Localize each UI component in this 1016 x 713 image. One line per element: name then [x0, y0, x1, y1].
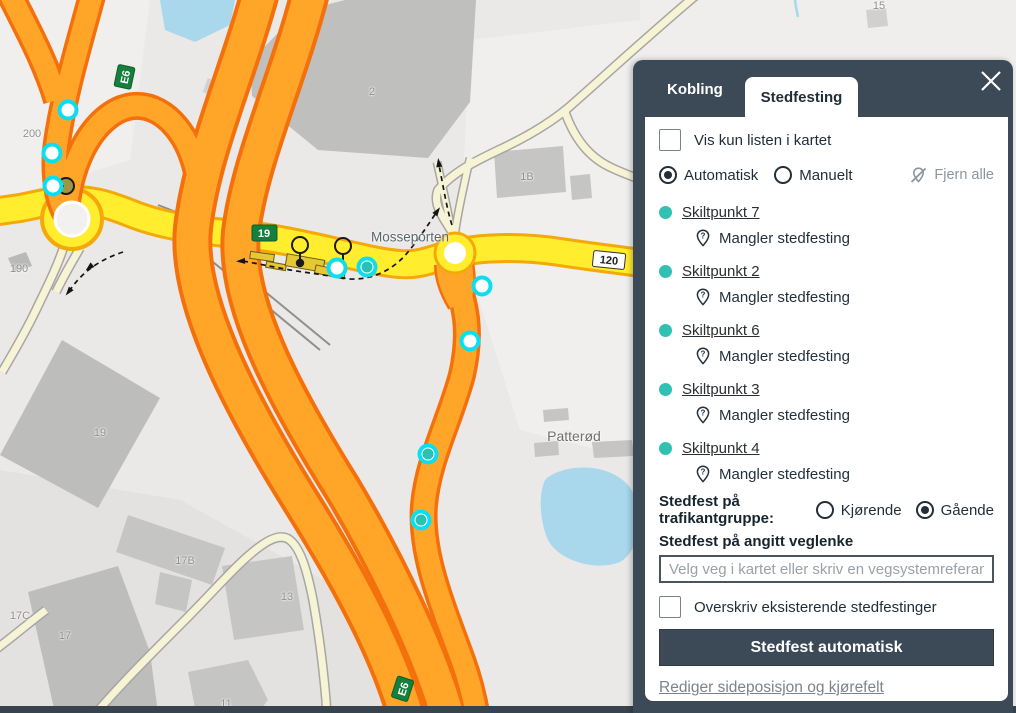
teal-dot-icon: [659, 383, 672, 396]
status-text: Mangler stedfesting: [719, 466, 850, 483]
pin-question-icon: ?: [695, 288, 711, 306]
edit-position-link[interactable]: Rediger sideposisjon og kjørefelt: [659, 679, 884, 697]
map-sign-point-marker[interactable]: [420, 446, 437, 463]
overwrite-label: Overskriv eksisterende stedfestinger: [694, 599, 937, 616]
map-sign-point-marker[interactable]: [44, 145, 61, 162]
svg-text:120: 120: [599, 254, 619, 268]
traffic-gaende-radio[interactable]: [916, 501, 934, 519]
teal-dot-icon: [659, 265, 672, 278]
show-only-list-label: Vis kun listen i kartet: [694, 132, 831, 149]
svg-text:19: 19: [258, 228, 270, 240]
traffic-gaende-label: Gående: [941, 502, 994, 519]
panel-body: Vis kun listen i kartet Automatisk Manue…: [645, 117, 1008, 701]
panel-header: Kobling Stedfesting: [633, 60, 1013, 117]
pin-question-icon: ?: [695, 229, 711, 247]
badge-19: 19: [252, 225, 277, 241]
list-item: Skiltpunkt 6 ? Mangler stedfesting: [659, 321, 994, 365]
map-sign-point-marker[interactable]: [413, 512, 430, 529]
map-sign-point-marker[interactable]: [359, 259, 376, 276]
teal-dot-icon: [659, 324, 672, 337]
traffic-kjorende-radio[interactable]: [816, 501, 834, 519]
status-text: Mangler stedfesting: [719, 289, 850, 306]
tab-stedfesting[interactable]: Stedfesting: [745, 77, 858, 117]
traffic-group-label: Stedfest på trafikantgruppe:: [659, 493, 816, 527]
show-only-list-checkbox[interactable]: [659, 129, 681, 151]
map-sign-point-marker[interactable]: [329, 260, 346, 277]
list-item: Skiltpunkt 7 ? Mangler stedfesting: [659, 203, 994, 247]
mode-row: Automatisk Manuelt Fjern alle: [659, 164, 994, 186]
svg-text:?: ?: [701, 409, 706, 418]
pin-question-icon: ?: [695, 465, 711, 483]
road-link-input[interactable]: [659, 555, 994, 583]
map-sign-point-marker[interactable]: [474, 278, 491, 295]
close-icon[interactable]: [979, 69, 1003, 93]
map-sign-point-marker[interactable]: [462, 333, 479, 350]
sign-point-link[interactable]: Skiltpunkt 6: [682, 322, 760, 339]
remove-all-button[interactable]: Fjern alle: [909, 166, 994, 185]
svg-text:?: ?: [701, 350, 706, 359]
remove-all-label: Fjern alle: [934, 167, 994, 183]
pin-question-icon: ?: [695, 406, 711, 424]
stedfesting-panel: Kobling Stedfesting Vis kun listen i kar…: [633, 60, 1013, 713]
sign-point-link[interactable]: Skiltpunkt 3: [682, 381, 760, 398]
badge-120: 120: [592, 250, 625, 269]
slashed-pin-icon: [909, 166, 928, 185]
map-sign-point-marker[interactable]: [45, 178, 62, 195]
mode-automatic-label: Automatisk: [684, 167, 758, 184]
status-text: Mangler stedfesting: [719, 230, 850, 247]
sign-point-link[interactable]: Skiltpunkt 4: [682, 440, 760, 457]
list-item: Skiltpunkt 4 ? Mangler stedfesting: [659, 439, 994, 483]
stedfest-automatisk-button[interactable]: Stedfest automatisk: [659, 629, 994, 666]
list-item: Skiltpunkt 2 ? Mangler stedfesting: [659, 262, 994, 306]
status-text: Mangler stedfesting: [719, 407, 850, 424]
sign-point-link[interactable]: Skiltpunkt 2: [682, 263, 760, 280]
teal-dot-icon: [659, 442, 672, 455]
sign-point-list: Skiltpunkt 7 ? Mangler stedfesting Skilt…: [659, 203, 994, 483]
app-window: E6 E6 19 120 Mosseporten Patterød 200190…: [0, 0, 1016, 713]
map-sign-point-marker[interactable]: [60, 102, 77, 119]
status-text: Mangler stedfesting: [719, 348, 850, 365]
tab-kobling[interactable]: Kobling: [667, 60, 723, 117]
list-item: Skiltpunkt 3 ? Mangler stedfesting: [659, 380, 994, 424]
road-link-label: Stedfest på angitt veglenke: [659, 533, 994, 550]
show-only-list-row: Vis kun listen i kartet: [659, 129, 994, 151]
mode-automatic-radio[interactable]: [659, 166, 677, 184]
traffic-kjorende-label: Kjørende: [841, 502, 902, 519]
teal-dot-icon: [659, 206, 672, 219]
svg-text:?: ?: [701, 232, 706, 241]
svg-text:?: ?: [701, 291, 706, 300]
sign-point-link[interactable]: Skiltpunkt 7: [682, 204, 760, 221]
overwrite-row: Overskriv eksisterende stedfestinger: [659, 596, 994, 618]
traffic-group-row: Stedfest på trafikantgruppe: Kjørende Gå…: [659, 498, 994, 522]
overwrite-checkbox[interactable]: [659, 596, 681, 618]
mode-manual-radio[interactable]: [774, 166, 792, 184]
pin-question-icon: ?: [695, 347, 711, 365]
mode-manual-label: Manuelt: [799, 167, 852, 184]
svg-text:?: ?: [701, 468, 706, 477]
